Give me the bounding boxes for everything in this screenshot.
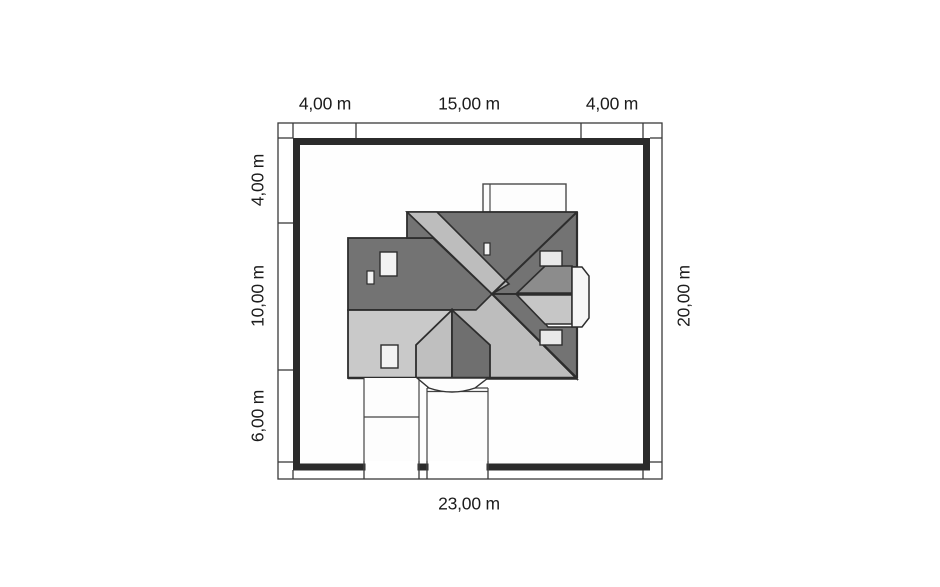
vent-upper-left bbox=[367, 271, 374, 284]
dim-label-top-right: 4,00 m bbox=[586, 94, 638, 115]
dim-label-left-upper: 4,00 m bbox=[248, 154, 269, 206]
site-plan: 4,00 m 15,00 m 4,00 m 4,00 m 10,00 m 6,0… bbox=[0, 0, 940, 587]
dim-label-left-lower: 6,00 m bbox=[248, 390, 269, 442]
vent-top-block bbox=[484, 243, 490, 255]
chimney-right-lower bbox=[540, 330, 562, 345]
dim-label-right: 20,00 m bbox=[674, 265, 695, 327]
chimney-right-upper bbox=[540, 251, 562, 266]
chimney-upper-left bbox=[380, 252, 397, 276]
dim-label-bottom: 23,00 m bbox=[438, 494, 500, 515]
dim-label-left-middle: 10,00 m bbox=[248, 265, 269, 327]
chimney-lower-left bbox=[381, 345, 398, 368]
terrace-outline bbox=[483, 184, 566, 212]
bay-window-footprint bbox=[572, 267, 589, 327]
dim-label-top-left: 4,00 m bbox=[299, 94, 351, 115]
dim-label-top-center: 15,00 m bbox=[438, 94, 500, 115]
